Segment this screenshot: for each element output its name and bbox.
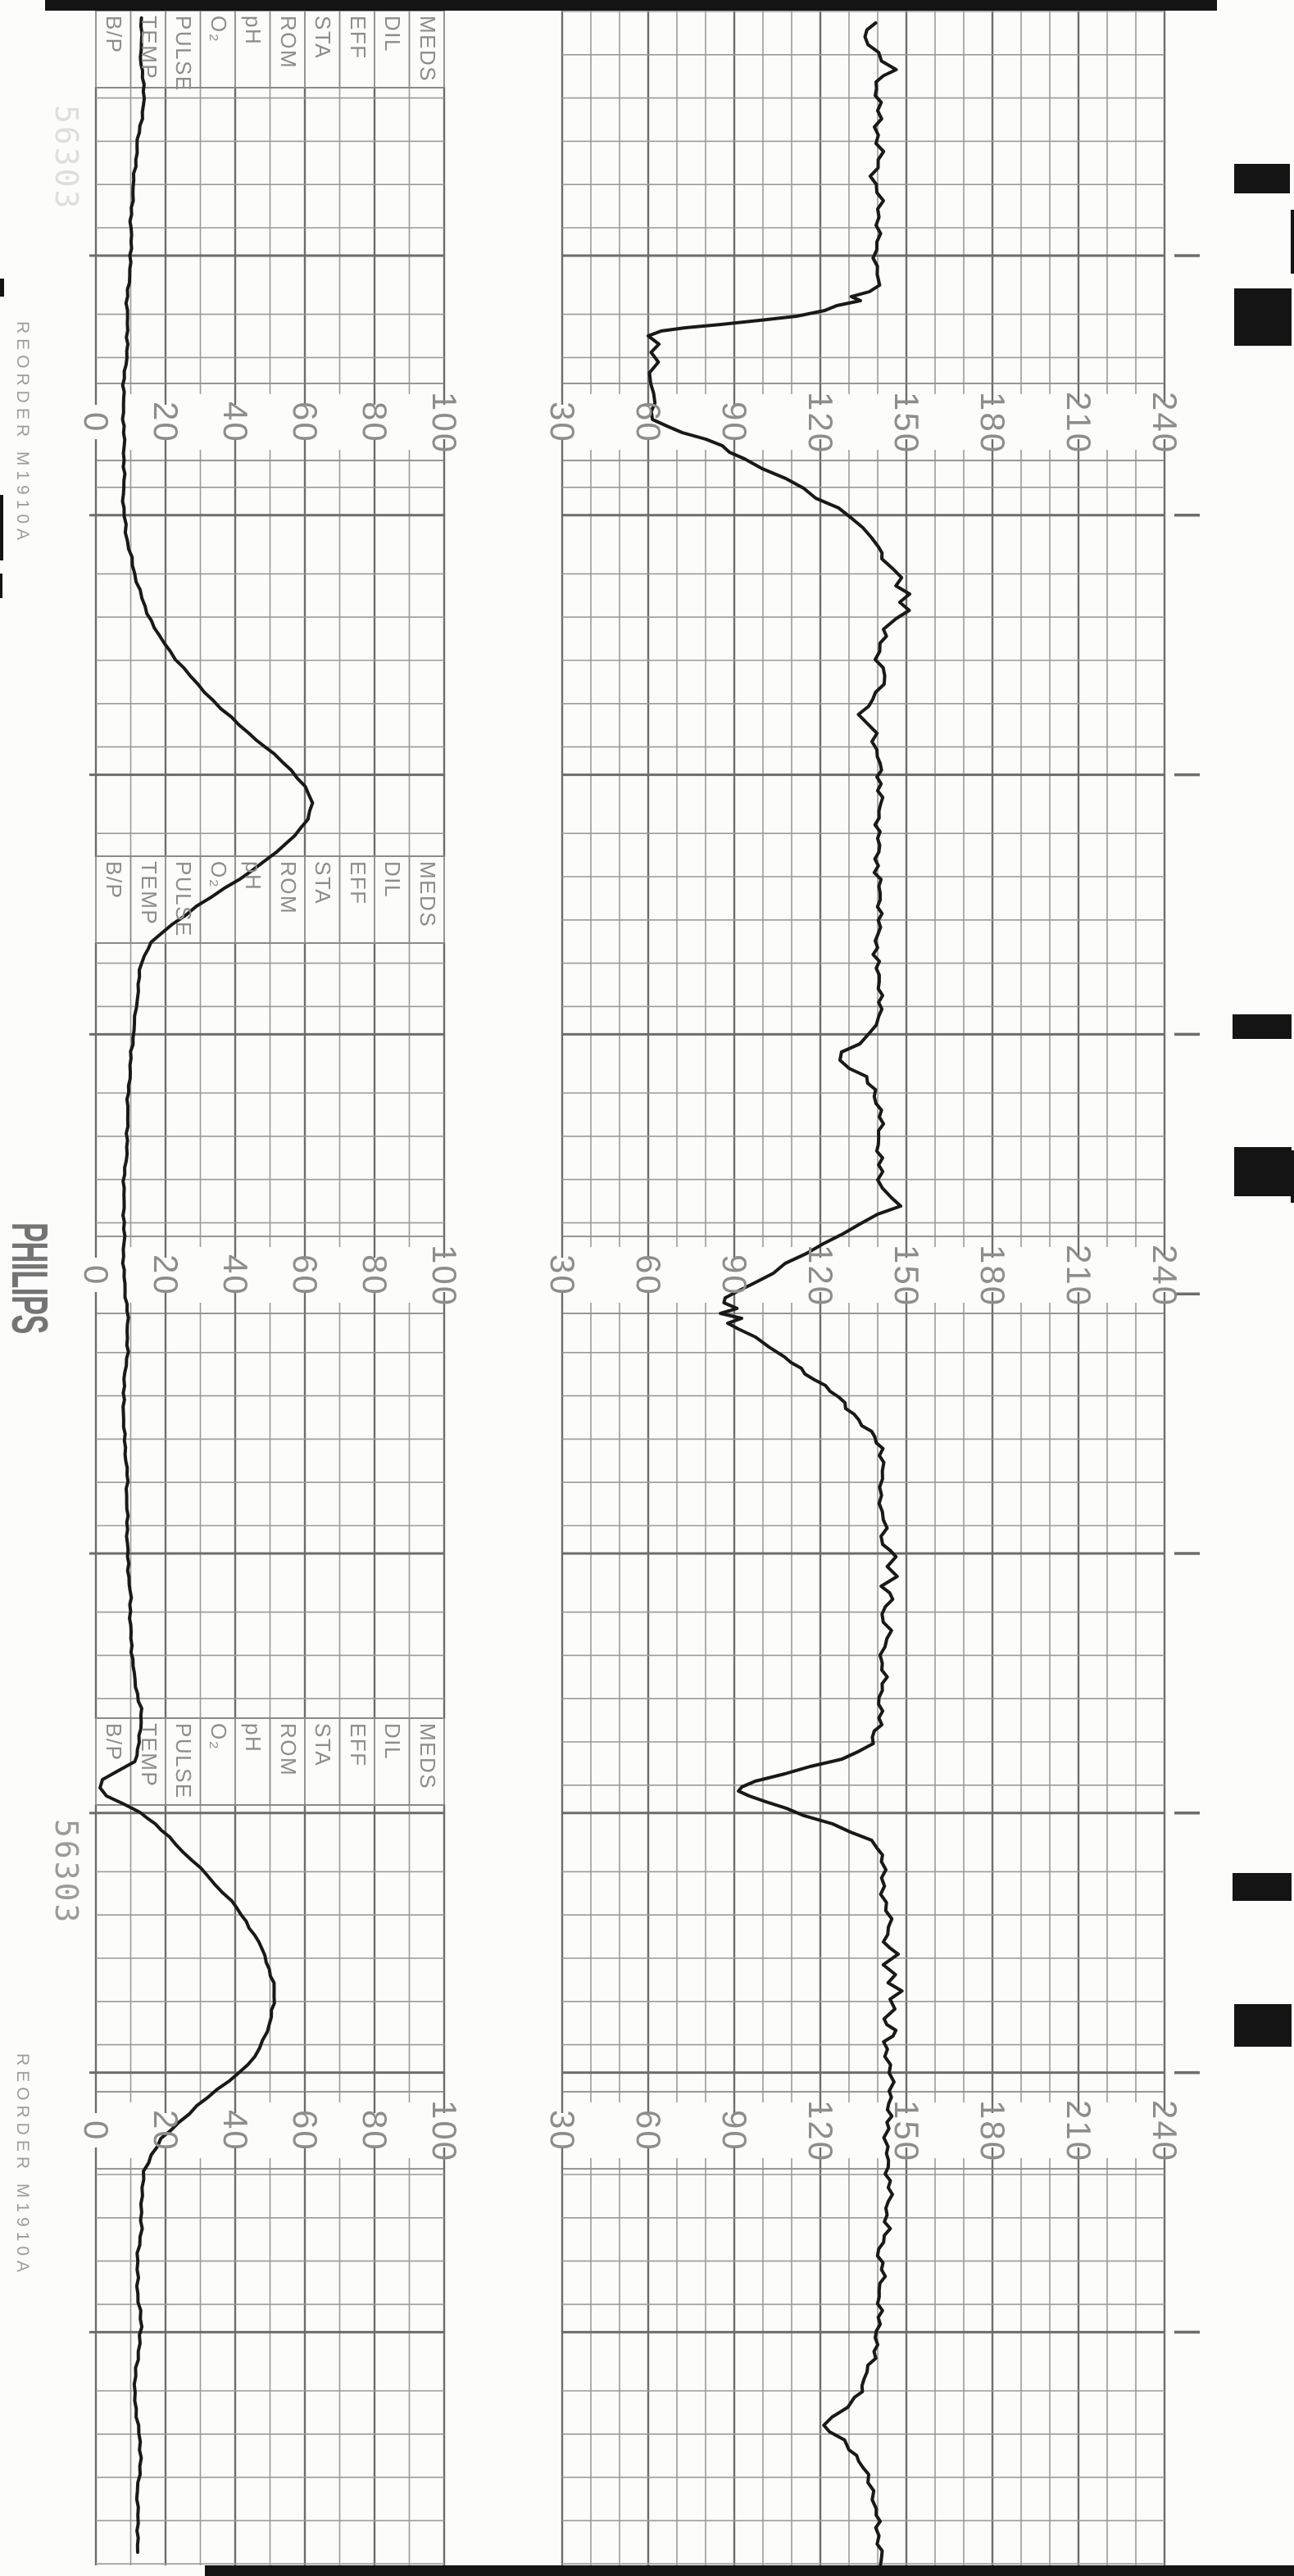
channel-label: DIL [382, 861, 403, 898]
toco-axis-number: 60 [288, 1254, 322, 1296]
channel-label: ROM [278, 861, 299, 914]
channel-label: O₂ [208, 16, 229, 43]
toco-axis-number: 40 [218, 1254, 252, 1296]
fhr-axis-number: 210 [1061, 2100, 1096, 2162]
toco-axis-number: 100 [427, 2100, 461, 2162]
channel-label: MEDS [417, 16, 438, 82]
toco-axis-number: 0 [79, 2120, 113, 2141]
channel-label: EFF [347, 1723, 369, 1767]
fhr-axis-number: 30 [545, 2110, 579, 2152]
fhr-axis-number: 180 [975, 392, 1010, 454]
channel-label: MEDS [417, 861, 438, 927]
channel-label: EFF [347, 861, 369, 905]
channel-label: B/P [103, 861, 125, 899]
channel-label: ROM [278, 1723, 299, 1776]
channel-label: DIL [382, 1723, 403, 1760]
channel-label: STA [312, 16, 334, 59]
fhr-axis-number: 210 [1061, 392, 1096, 454]
fhr-axis-number: 180 [975, 2100, 1010, 2162]
toco-axis-number: 40 [218, 2110, 252, 2152]
fhr-axis-number: 90 [717, 1254, 751, 1296]
reorder-label-bottom: REORDER M1910A [14, 2053, 31, 2277]
fhr-axis-number: 90 [717, 401, 751, 443]
serial-stamp: 56303 [51, 1819, 82, 1925]
fhr-axis-number: 120 [803, 1245, 838, 1307]
channel-label: TEMP [138, 16, 160, 79]
fhr-axis-number: 150 [889, 1245, 924, 1307]
monitor-strip-paper: REORDER M1910A PHILIPS 56303 56303 REORD… [0, 0, 1294, 2576]
channel-label: DIL [382, 16, 403, 52]
channel-label: pH [243, 1723, 264, 1753]
serial-stamp-faint: 56303 [51, 105, 82, 211]
fhr-axis-number: 150 [889, 392, 924, 454]
toco-axis-number: 80 [357, 1254, 392, 1296]
toco-axis-number: 60 [288, 2110, 322, 2152]
channel-label: O₂ [208, 861, 229, 888]
fhr-axis-number: 120 [803, 392, 838, 454]
toco-axis-number: 60 [288, 401, 322, 443]
channel-label: O₂ [208, 1723, 229, 1750]
channel-label: ROM [278, 16, 299, 69]
channel-label: EFF [347, 16, 369, 60]
channel-label: B/P [103, 1723, 125, 1761]
toco-axis-number: 100 [427, 392, 461, 454]
channel-label: TEMP [138, 861, 160, 925]
channel-label: TEMP [138, 1723, 160, 1787]
channel-label: pH [243, 861, 264, 891]
channel-label: PULSE [173, 16, 194, 92]
toco-axis-number: 20 [148, 401, 183, 443]
fhr-axis-number: 60 [631, 1254, 665, 1296]
toco-axis-number: 100 [427, 1245, 461, 1307]
fhr-axis-number: 240 [1147, 392, 1182, 454]
fhr-axis-number: 60 [631, 2110, 665, 2152]
channel-label: PULSE [173, 861, 194, 937]
fhr-axis-number: 240 [1147, 2100, 1182, 2162]
channel-label: STA [312, 1723, 334, 1766]
channel-label: PULSE [173, 1723, 194, 1799]
channel-label: B/P [103, 16, 125, 53]
toco-axis-number: 0 [79, 1265, 113, 1286]
fhr-axis-number: 30 [545, 1254, 579, 1296]
fhr-axis-number: 180 [975, 1245, 1010, 1307]
toco-axis-number: 40 [218, 401, 252, 443]
toco-axis-number: 0 [79, 412, 113, 433]
philips-logo: PHILIPS [3, 1222, 54, 1334]
channel-label: STA [312, 861, 334, 905]
fhr-axis-number: 210 [1061, 1245, 1096, 1307]
fhr-axis-number: 120 [803, 2100, 838, 2162]
fhr-axis-number: 150 [889, 2100, 924, 2162]
toco-axis-number: 80 [357, 2110, 392, 2152]
reorder-label-top: REORDER M1910A [14, 321, 31, 545]
channel-label: MEDS [417, 1723, 438, 1789]
toco-axis-number: 20 [148, 2110, 183, 2152]
fhr-axis-number: 30 [545, 401, 579, 443]
toco-axis-number: 20 [148, 1254, 183, 1296]
fhr-axis-number: 60 [631, 401, 665, 443]
channel-label: pH [243, 16, 264, 45]
fhr-axis-number: 90 [717, 2110, 751, 2152]
toco-axis-number: 80 [357, 401, 392, 443]
fhr-axis-number: 240 [1147, 1245, 1182, 1307]
